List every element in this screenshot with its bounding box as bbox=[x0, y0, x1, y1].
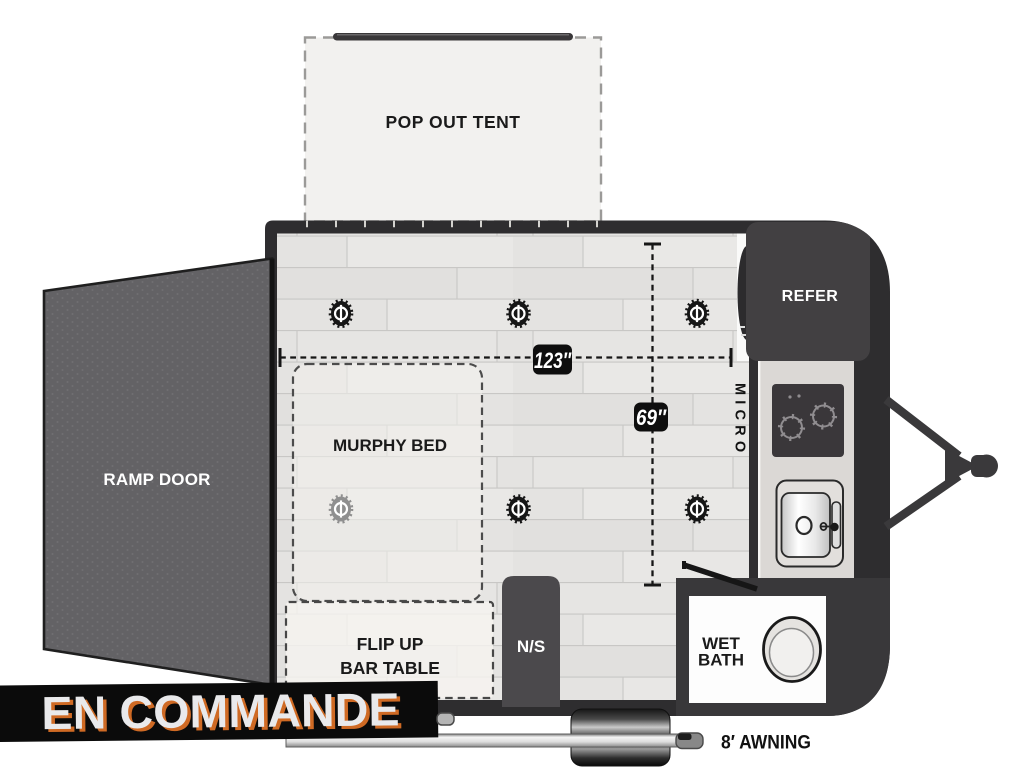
svg-text:REFER: REFER bbox=[782, 288, 839, 305]
svg-text:RAMP DOOR: RAMP DOOR bbox=[103, 470, 210, 489]
svg-text:BAR TABLE: BAR TABLE bbox=[340, 658, 440, 678]
svg-text:FLIP UP: FLIP UP bbox=[357, 634, 424, 654]
svg-text:MURPHY BED: MURPHY BED bbox=[333, 436, 447, 455]
svg-text:N/S: N/S bbox=[517, 637, 545, 656]
svg-text:123″: 123″ bbox=[534, 348, 572, 373]
svg-text:BATH: BATH bbox=[698, 651, 744, 670]
svg-text:69″: 69″ bbox=[636, 405, 667, 430]
svg-text:MICRO: MICRO bbox=[732, 383, 748, 457]
svg-text:POP OUT TENT: POP OUT TENT bbox=[386, 112, 521, 132]
svg-text:EN COMMANDE: EN COMMANDE bbox=[41, 683, 400, 739]
svg-text:8′ AWNING: 8′ AWNING bbox=[721, 733, 811, 754]
